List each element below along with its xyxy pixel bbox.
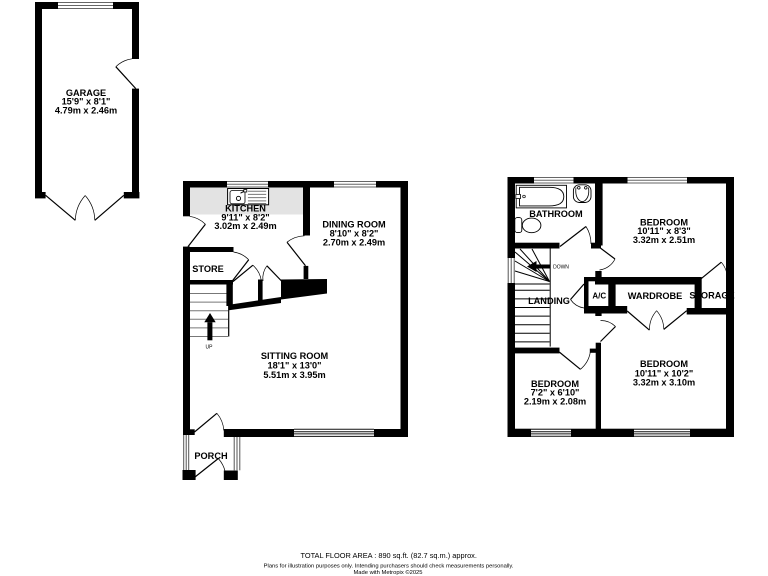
svg-text:SITTING ROOM: SITTING ROOM: [261, 351, 329, 361]
svg-text:2.70m x 2.49m: 2.70m x 2.49m: [323, 238, 385, 248]
svg-text:TOTAL FLOOR AREA : 890 sq.ft.: TOTAL FLOOR AREA : 890 sq.ft. (82.7 sq.m…: [300, 551, 477, 560]
svg-text:3.02m x 2.49m: 3.02m x 2.49m: [214, 221, 276, 231]
svg-text:UP: UP: [206, 345, 214, 351]
svg-text:Made with Metropix ©2025: Made with Metropix ©2025: [353, 569, 422, 576]
svg-text:A/C: A/C: [592, 292, 606, 301]
svg-text:4.79m x 2.46m: 4.79m x 2.46m: [55, 105, 117, 115]
svg-text:DOWN: DOWN: [553, 264, 569, 270]
svg-text:STORE: STORE: [192, 264, 223, 274]
svg-text:2.19m x 2.08m: 2.19m x 2.08m: [524, 396, 586, 406]
svg-text:3.32m x 3.10m: 3.32m x 3.10m: [633, 378, 695, 388]
svg-text:WARDROBE: WARDROBE: [628, 291, 683, 301]
svg-text:PORCH: PORCH: [194, 451, 228, 461]
svg-text:Plans for illustration purpose: Plans for illustration purposes only. In…: [264, 564, 514, 570]
svg-text:5.51m x 3.95m: 5.51m x 3.95m: [263, 370, 325, 380]
svg-text:18'1" x 13'0": 18'1" x 13'0": [268, 361, 322, 371]
svg-text:BATHROOM: BATHROOM: [529, 209, 583, 219]
svg-text:LANDING: LANDING: [528, 296, 570, 306]
svg-text:3.32m x 2.51m: 3.32m x 2.51m: [633, 235, 695, 245]
